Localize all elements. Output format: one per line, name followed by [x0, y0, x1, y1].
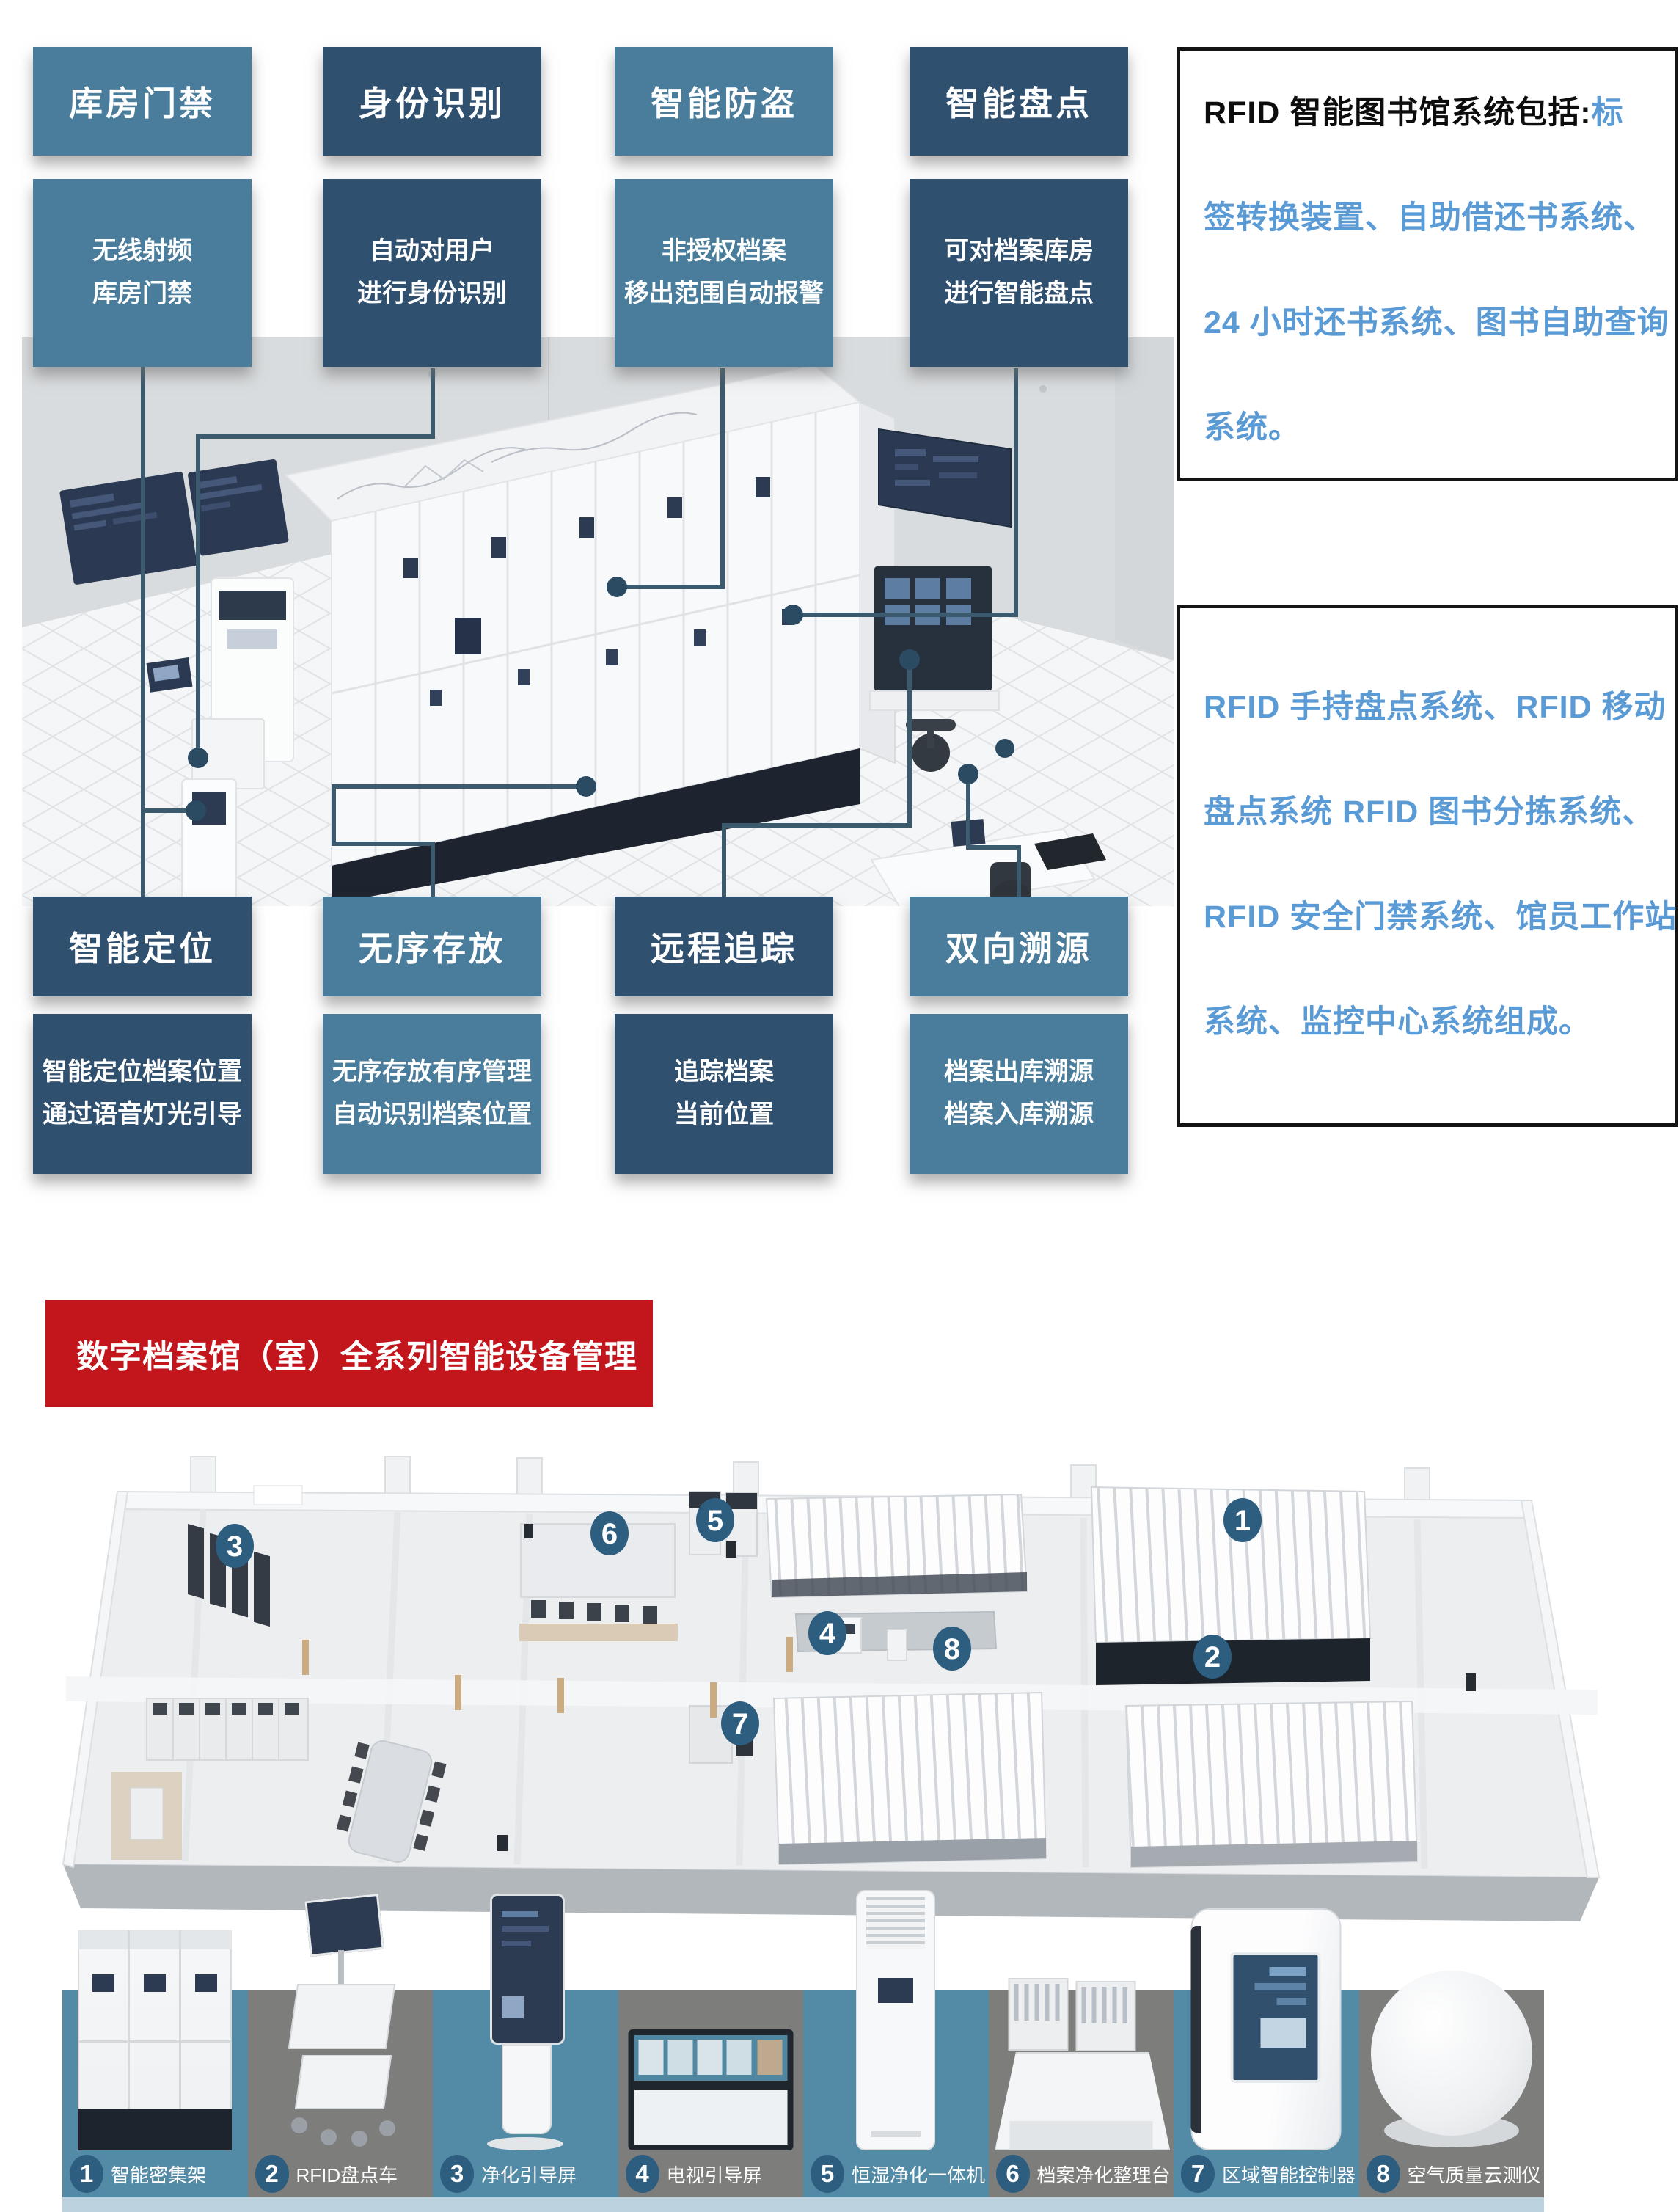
- badge-8: 8: [944, 1633, 960, 1665]
- info1-line-1: RFID 智能图书馆系统包括:标: [1204, 61, 1651, 166]
- equipment-label-8: 8 空气质量云测仪: [1359, 2150, 1545, 2197]
- equipment-cell-4: 4 电视引导屏: [618, 1990, 804, 2197]
- product-art-air-sensor: [1371, 1971, 1532, 2150]
- badge-3: 3: [227, 1530, 243, 1563]
- product-art-controller: [1191, 1908, 1342, 2150]
- badge-7: 7: [732, 1708, 748, 1740]
- equipment-cell-8: 8 空气质量云测仪: [1359, 1990, 1545, 2197]
- equipment-cell-6: 6 档案净化整理台: [989, 1990, 1174, 2197]
- product-art-console: [995, 1978, 1167, 2150]
- equipment-name-6: 档案净化整理台: [1037, 2161, 1171, 2188]
- equipment-name-8: 空气质量云测仪: [1408, 2161, 1541, 2188]
- floorplan-render: 3 6 5 1 4 8 2 7: [44, 1456, 1606, 1941]
- archive-room-render: [22, 279, 1174, 906]
- feature-top-4-title: 智能盘点: [910, 47, 1128, 156]
- equipment-num-3: 3: [440, 2155, 474, 2193]
- product-art-kiosk: [481, 1894, 569, 2150]
- equipment-name-1: 智能密集架: [111, 2161, 206, 2188]
- feature-bottom-2-desc: 无序存放有序管理 自动识别档案位置: [323, 1014, 541, 1174]
- feature-bottom-1-title: 智能定位: [33, 897, 252, 996]
- equipment-label-5: 5 恒湿净化一体机: [803, 2150, 989, 2197]
- desc-line: 自动对用户: [370, 230, 494, 273]
- equipment-name-4: 电视引导屏: [667, 2161, 762, 2188]
- equipment-num-5: 5: [811, 2155, 844, 2193]
- wall-card-reader: [146, 657, 192, 693]
- desc-line: 当前位置: [674, 1094, 774, 1136]
- feature-bottom-1-desc: 智能定位档案位置 通过语音灯光引导: [33, 1014, 252, 1174]
- equipment-label-2: 2 RFID盘点车: [248, 2150, 434, 2197]
- equipment-label-1: 1 智能密集架: [62, 2150, 248, 2197]
- desc-line: 非授权档案: [662, 230, 786, 273]
- feature-top-2-desc: 自动对用户 进行身份识别: [323, 179, 541, 367]
- badge-4: 4: [819, 1618, 836, 1650]
- feature-bottom-2-title: 无序存放: [323, 897, 541, 996]
- desc-line: 档案出库溯源: [944, 1051, 1094, 1094]
- equipment-num-7: 7: [1181, 2155, 1215, 2193]
- feature-top-1-desc: 无线射频 库房门禁: [33, 179, 252, 367]
- page: { "colors": { "teal_box": "#4a7d9b", "na…: [0, 0, 1679, 2212]
- desc-line: 无线射频: [92, 230, 192, 273]
- desc-line: 无序存放有序管理: [332, 1051, 532, 1094]
- desc-line: 档案入库溯源: [944, 1094, 1094, 1136]
- equipment-cell-2: 2 RFID盘点车: [248, 1990, 434, 2197]
- info1-line-4: 系统。: [1204, 376, 1651, 481]
- equipment-label-7: 7 区域智能控制器: [1174, 2150, 1359, 2197]
- desc-line: 移出范围自动报警: [624, 273, 824, 315]
- equipment-num-4: 4: [626, 2155, 659, 2193]
- info-box-rfid-systems: RFID 手持盘点系统、RFID 移动 盘点系统 RFID 图书分拣系统、 RF…: [1177, 605, 1678, 1127]
- equipment-name-2: RFID盘点车: [296, 2161, 398, 2188]
- equipment-num-6: 6: [996, 2155, 1030, 2193]
- strip-bottom-bar: [62, 2197, 1544, 2212]
- info2-line-3: RFID 安全门禁系统、馆员工作站: [1204, 865, 1651, 970]
- badge-5: 5: [707, 1505, 723, 1537]
- product-art-tower: [856, 1890, 935, 2150]
- feature-bottom-4-desc: 档案出库溯源 档案入库溯源: [910, 1014, 1128, 1174]
- equipment-cell-5: 5 恒湿净化一体机: [803, 1990, 989, 2197]
- info1-line-2: 签转换装置、自助借还书系统、: [1204, 166, 1651, 271]
- info1-lead: RFID 智能图书馆系统包括:: [1204, 95, 1592, 131]
- feature-top-3-title: 智能防盗: [615, 47, 833, 156]
- info-box-rfid-library: RFID 智能图书馆系统包括:标 签转换装置、自助借还书系统、 24 小时还书系…: [1177, 47, 1678, 481]
- badge-6: 6: [601, 1518, 618, 1550]
- product-art-shelving: [78, 1930, 232, 2150]
- equipment-label-4: 4 电视引导屏: [618, 2150, 804, 2197]
- desc-line: 通过语音灯光引导: [43, 1094, 242, 1136]
- desc-line: 自动识别档案位置: [332, 1094, 532, 1136]
- feature-top-2-title: 身份识别: [323, 47, 541, 156]
- equipment-name-3: 净化引导屏: [481, 2161, 577, 2188]
- badge-2: 2: [1204, 1641, 1221, 1673]
- section-banner: 数字档案馆（室）全系列智能设备管理: [45, 1300, 653, 1407]
- equipment-num-1: 1: [70, 2155, 103, 2193]
- feature-bottom-4-title: 双向溯源: [910, 897, 1128, 996]
- desc-line: 可对档案库房: [944, 230, 1094, 273]
- equipment-num-2: 2: [255, 2155, 289, 2193]
- equipment-cell-3: 3 净化引导屏: [433, 1990, 618, 2197]
- equipment-label-6: 6 档案净化整理台: [989, 2150, 1174, 2197]
- desc-line: 智能定位档案位置: [43, 1051, 242, 1094]
- product-art-tv: [628, 2029, 793, 2150]
- feature-top-4-desc: 可对档案库房 进行智能盘点: [910, 179, 1128, 367]
- badge-1: 1: [1234, 1505, 1251, 1537]
- equipment-num-8: 8: [1367, 2155, 1400, 2193]
- feature-top-3-desc: 非授权档案 移出范围自动报警: [615, 179, 833, 367]
- guidance-kiosk: [182, 779, 236, 904]
- equipment-strip: 1 智能密集架 2 RFID盘点车: [62, 1990, 1544, 2197]
- wall-monitor-left-2: [188, 459, 289, 556]
- feature-bottom-3-title: 远程追踪: [615, 897, 833, 996]
- info2-line-1: RFID 手持盘点系统、RFID 移动: [1204, 655, 1651, 760]
- desc-line: 追踪档案: [674, 1051, 774, 1094]
- desc-line: 进行身份识别: [357, 273, 507, 315]
- equipment-name-5: 恒湿净化一体机: [852, 2161, 985, 2188]
- info1-line-3: 24 小时还书系统、图书自助查询: [1204, 271, 1651, 376]
- product-art-cart: [278, 1897, 403, 2150]
- equipment-name-7: 区域智能控制器: [1222, 2161, 1356, 2188]
- equipment-label-3: 3 净化引导屏: [433, 2150, 618, 2197]
- desc-line: 库房门禁: [92, 273, 192, 315]
- equipment-cell-7: 7 区域智能控制器: [1174, 1990, 1359, 2197]
- equipment-cell-1: 1 智能密集架: [62, 1990, 248, 2197]
- info1-lead-blue: 标: [1592, 95, 1624, 131]
- info2-line-4: 系统、监控中心系统组成。: [1204, 970, 1651, 1075]
- feature-top-1-title: 库房门禁: [33, 47, 252, 156]
- feature-bottom-3-desc: 追踪档案 当前位置: [615, 1014, 833, 1174]
- desc-line: 进行智能盘点: [944, 273, 1094, 315]
- info2-line-2: 盘点系统 RFID 图书分拣系统、: [1204, 760, 1651, 865]
- wall-monitor-left-1: [59, 472, 197, 585]
